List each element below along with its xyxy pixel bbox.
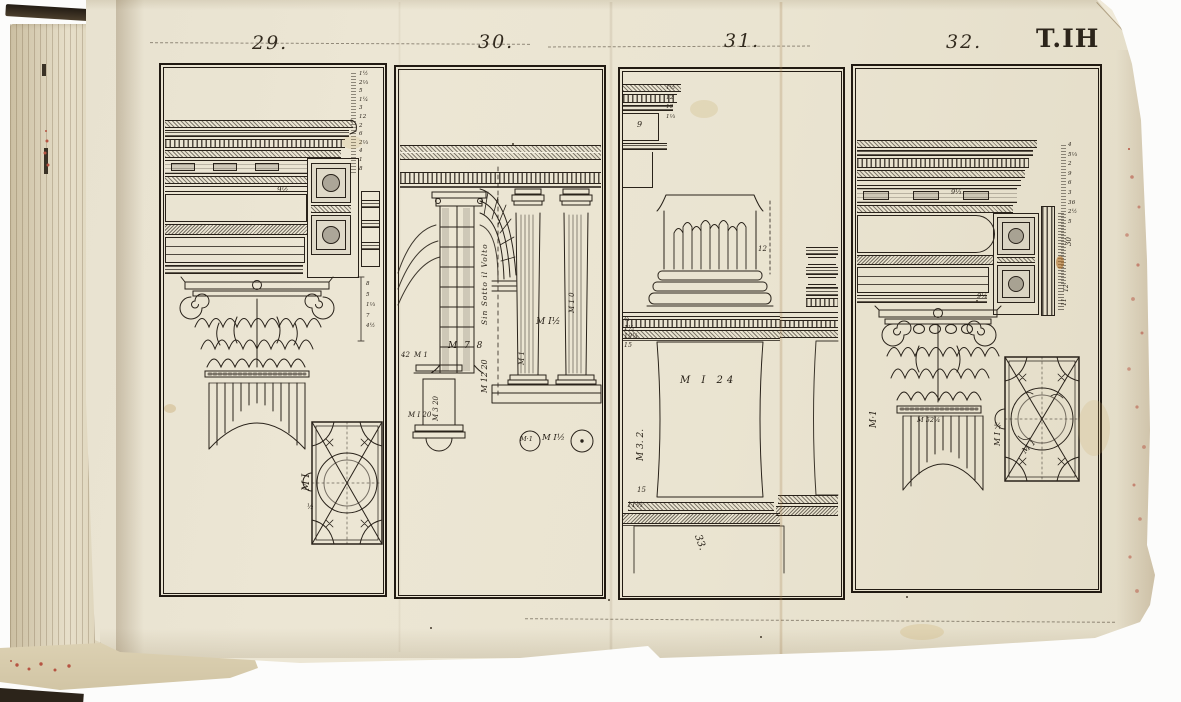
circle-left-label: M·1 <box>520 435 533 443</box>
panel-number-31: 31. <box>724 30 760 52</box>
foxing-stain <box>1056 256 1064 269</box>
book-cover-bottom-sliver <box>0 688 84 702</box>
fold-crease <box>609 2 613 654</box>
plate-mark-top <box>150 42 530 45</box>
measure-number: 19¼ <box>624 334 638 341</box>
measure-number: 15 <box>624 343 632 350</box>
fold-crease <box>398 2 401 652</box>
panel-31-drawing <box>620 69 842 597</box>
pedestal-plinth <box>634 526 784 573</box>
lower-left-number-bottom: 11⅓ <box>627 501 643 509</box>
die-module-label: M I 24 <box>680 375 737 386</box>
fold-crease <box>779 2 783 654</box>
shaft-number-label: M 52¼ <box>917 416 940 424</box>
circle-mid-label: M I½ <box>542 433 565 443</box>
composite-capital <box>875 306 1001 413</box>
plate-reference: T.IH <box>1036 24 1099 53</box>
pier-module-label: M 1 <box>414 351 428 359</box>
panel-number-32: 32. <box>946 31 982 53</box>
ink-speck <box>608 599 610 601</box>
plan-vertical-label: M I ½ <box>993 400 1002 446</box>
under-vault-note: Sin Sotto il Volto <box>480 225 489 325</box>
foxing-stain <box>164 404 176 413</box>
fore-edge-red-speckle <box>45 130 47 132</box>
cap-left-measurements: ¾1⅓19¼15 <box>624 317 638 349</box>
plate-mark-bottom <box>525 618 1115 623</box>
panel-30-arcade-and-colonnade: Sin Sotto il Volto M 12 20 M 7 8 42 M 1 … <box>394 65 606 599</box>
pedestal-base-label: M I 20 <box>408 411 431 419</box>
panel-number-29: 29. <box>252 32 288 54</box>
measure-number: 1⅓ <box>624 326 634 333</box>
panel-32-composite-entablature: 45⅓2963362½5 30 12 11 9⅓ 9¼ <box>851 64 1102 593</box>
foxing-stain <box>1078 400 1110 456</box>
shaft-base-number: 12 <box>758 245 767 253</box>
top-edge-shading <box>86 0 1106 10</box>
foxing-stain <box>690 100 718 118</box>
die-vertical-label: M 3. 2. <box>636 409 646 461</box>
stylobate <box>492 385 601 403</box>
corinthian-capital <box>180 277 334 377</box>
edge-red-speckle <box>1128 148 1130 150</box>
right-pedestal-die <box>814 341 839 495</box>
panel-31-pedestals: 9 1½12191⅓ <box>618 67 845 600</box>
right-column-module-label: M 1 0 <box>568 275 576 313</box>
fore-edge-mark <box>44 148 48 174</box>
book-bottom-red-speckle <box>10 660 12 662</box>
foxing-stain <box>342 136 362 149</box>
fluted-shaft <box>209 383 305 449</box>
horizontal-dimension-label: M 7 8 <box>448 341 484 351</box>
bottom-edge-shading <box>100 628 1110 658</box>
fluted-shaft <box>903 416 983 490</box>
measure-number: ¾ <box>624 317 630 324</box>
fore-edge-mark <box>42 64 46 76</box>
column-shaft-bottom <box>647 195 773 306</box>
plate-page: 29. 30. 31. 32. T.IH <box>0 0 1181 702</box>
gutter-shadow <box>116 0 144 660</box>
lower-left-number-top: 15 <box>637 486 646 494</box>
capital-plan <box>303 422 382 544</box>
pier-number-label: 42 <box>401 351 410 359</box>
capital-module-label: M·1 <box>869 390 879 428</box>
plate-mark-top <box>548 46 810 48</box>
foxing-stain <box>900 624 944 640</box>
panel-30-drawing <box>396 67 604 596</box>
intercolumn-module-label: M I½ <box>536 317 560 327</box>
pedestal-vertical-label: M 3 20 <box>432 381 440 421</box>
pedestal-die <box>657 342 763 497</box>
scanned-book-plate: 29. 30. 31. 32. T.IH <box>0 0 1181 702</box>
capital-plan <box>995 357 1079 481</box>
right-edge-shading <box>1098 50 1158 630</box>
left-column-module-label: M 1 <box>518 333 526 365</box>
panel-number-30: 30. <box>478 31 514 53</box>
panel-32-drawing <box>853 66 1099 590</box>
